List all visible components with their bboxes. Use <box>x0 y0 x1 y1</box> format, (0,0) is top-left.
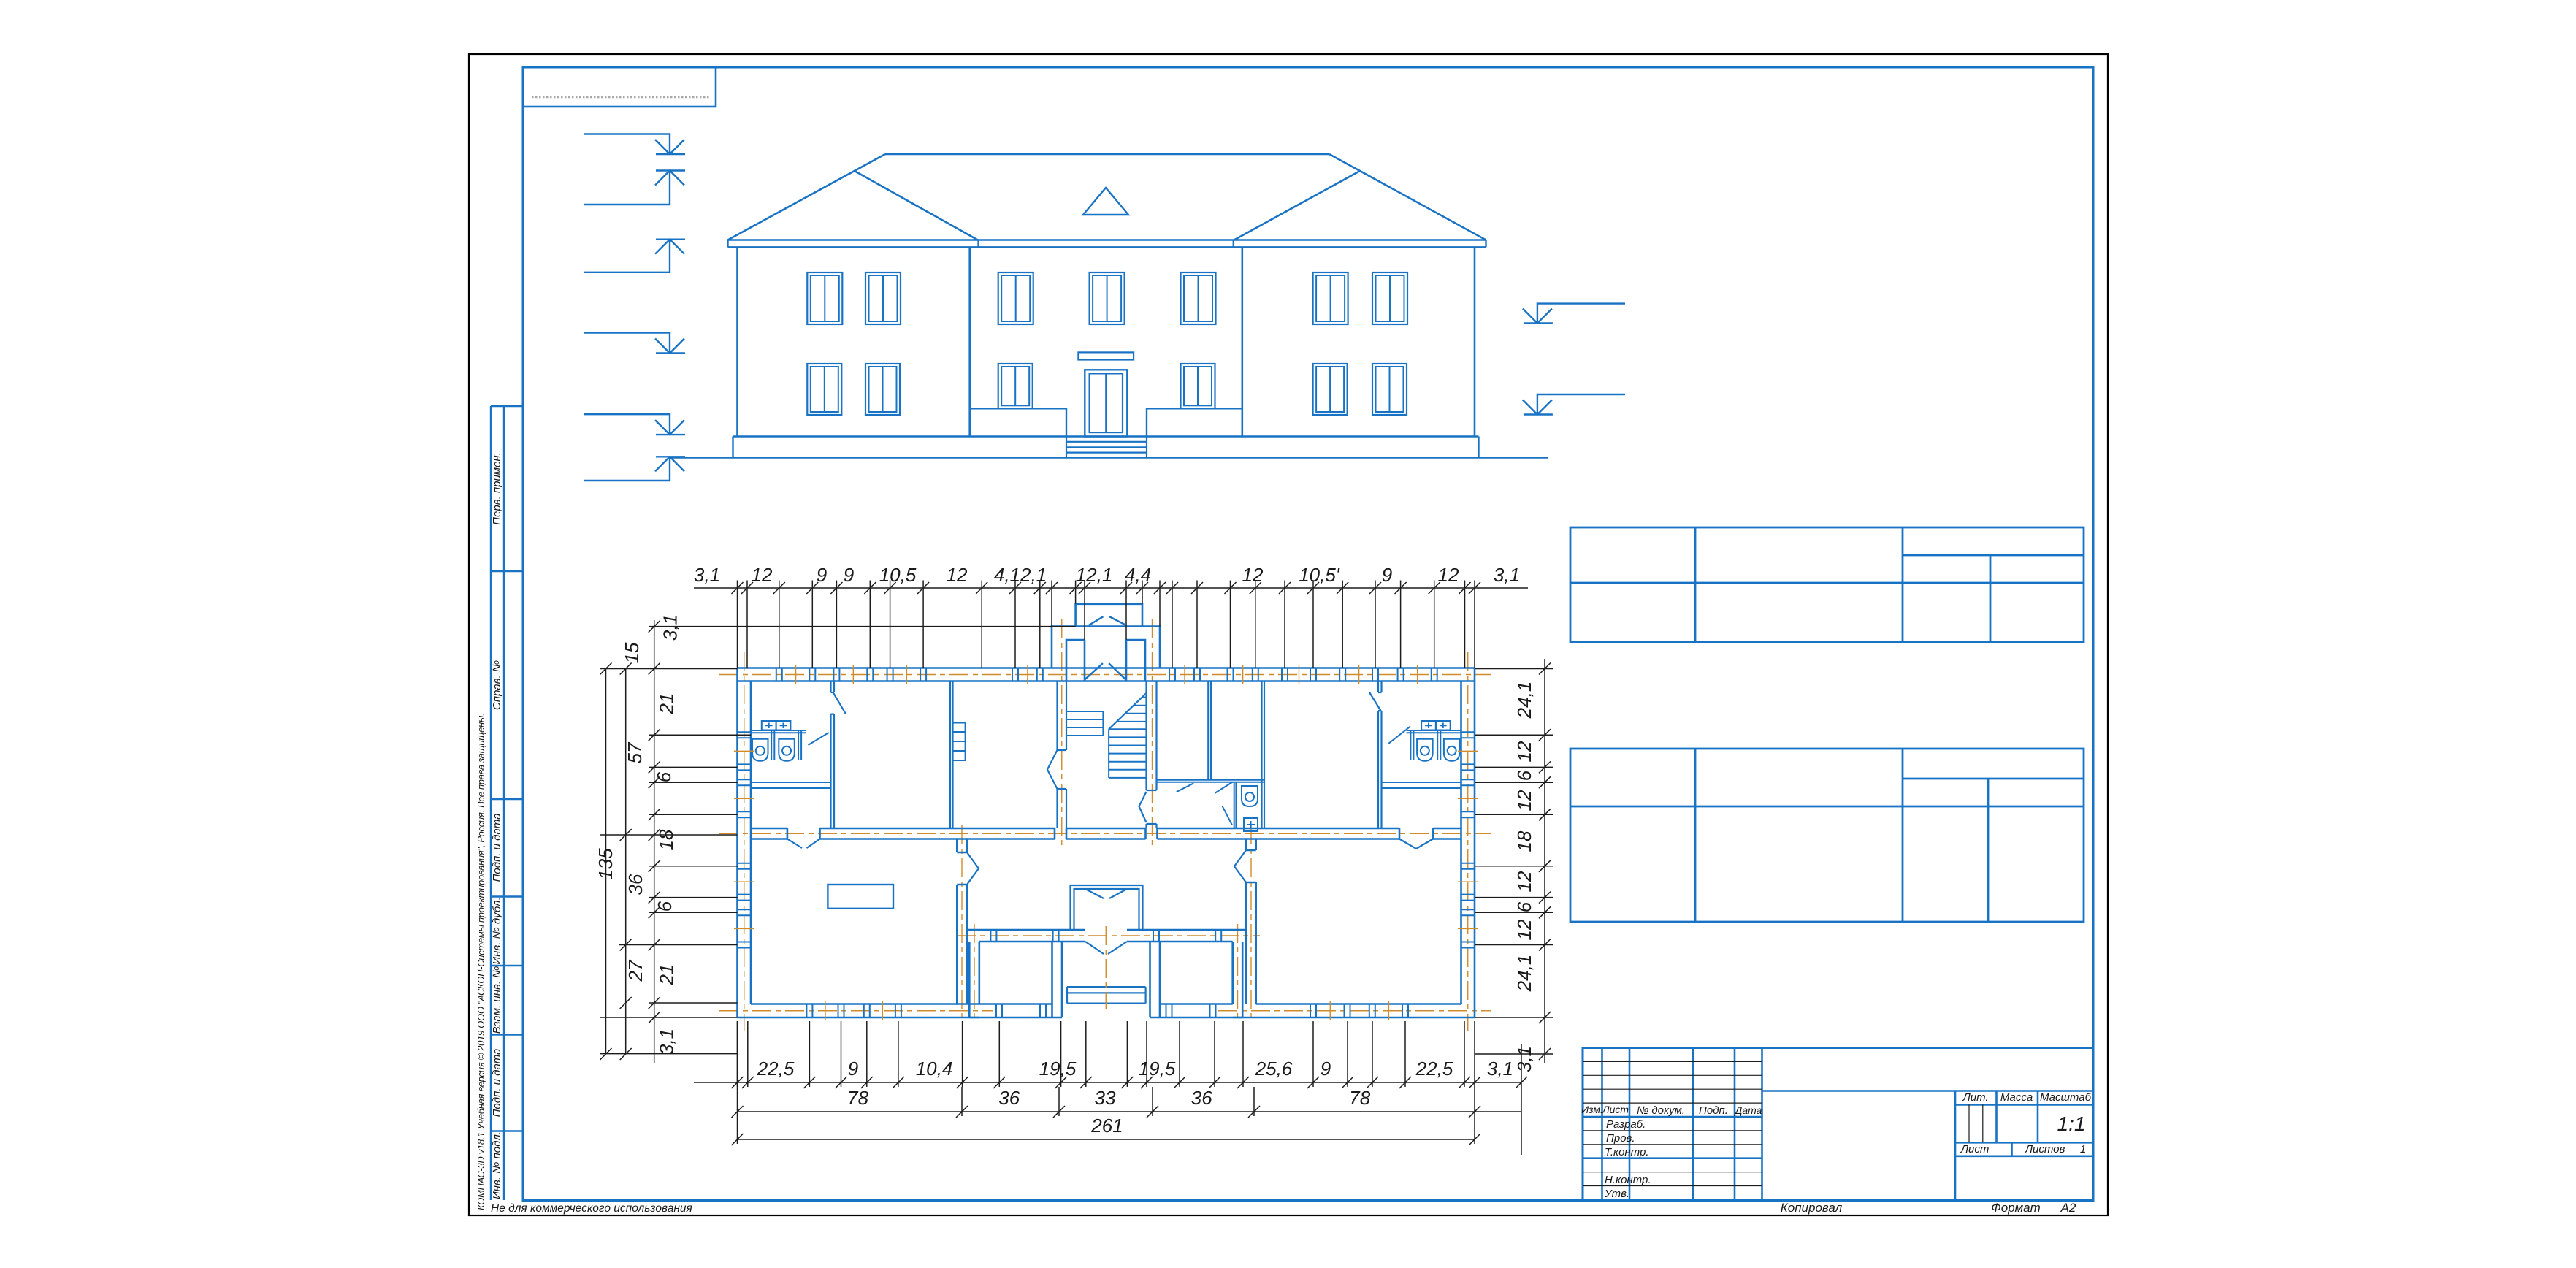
svg-text:25,6: 25,6 <box>1255 1058 1293 1080</box>
svg-text:78: 78 <box>1349 1087 1370 1109</box>
svg-text:36: 36 <box>624 874 646 895</box>
svg-text:12: 12 <box>752 564 773 586</box>
svg-text:12: 12 <box>1513 741 1535 762</box>
svg-text:1: 1 <box>2080 1143 2086 1156</box>
svg-text:10,5: 10,5 <box>879 564 917 586</box>
svg-text:12: 12 <box>1513 871 1535 892</box>
svg-text:10,5': 10,5' <box>1299 564 1340 586</box>
svg-text:135: 135 <box>595 848 616 880</box>
svg-text:Утв.: Утв. <box>1604 1188 1629 1200</box>
svg-text:Инв. № дубл.: Инв. № дубл. <box>491 897 503 964</box>
svg-text:36: 36 <box>998 1087 1020 1109</box>
svg-text:12: 12 <box>1513 790 1535 811</box>
svg-text:Копировал: Копировал <box>1781 1201 1843 1215</box>
svg-text:Разраб.: Разраб. <box>1606 1118 1646 1131</box>
svg-text:12: 12 <box>1242 564 1264 586</box>
svg-text:Не для коммерческого использов: Не для коммерческого использования <box>491 1202 692 1215</box>
svg-text:3,1: 3,1 <box>694 564 720 586</box>
svg-text:Формат: Формат <box>1991 1201 2041 1215</box>
svg-text:6: 6 <box>1513 770 1535 781</box>
svg-text:А2: А2 <box>2060 1201 2076 1215</box>
svg-text:33: 33 <box>1095 1087 1116 1109</box>
svg-text:Подп. и дата: Подп. и дата <box>491 814 503 882</box>
svg-text:9: 9 <box>844 564 854 586</box>
svg-text:6: 6 <box>654 901 676 912</box>
svg-text:3,1: 3,1 <box>656 1028 678 1055</box>
svg-text:Подп. и дата: Подп. и дата <box>491 1049 503 1118</box>
svg-text:Т.контр.: Т.контр. <box>1605 1146 1649 1158</box>
svg-text:261: 261 <box>1090 1115 1123 1137</box>
svg-text:57: 57 <box>624 741 646 763</box>
svg-text:6: 6 <box>653 771 675 782</box>
svg-text:Изм.: Изм. <box>1581 1104 1603 1115</box>
svg-text:4,12,1: 4,12,1 <box>994 564 1047 586</box>
svg-text:3,1: 3,1 <box>1494 564 1520 586</box>
svg-text:Масса: Масса <box>2000 1091 2033 1104</box>
svg-text:Масштаб: Масштаб <box>2040 1091 2092 1104</box>
svg-text:36: 36 <box>1191 1087 1212 1109</box>
svg-text:3,1: 3,1 <box>1513 1046 1535 1072</box>
svg-text:24,1: 24,1 <box>1513 681 1535 719</box>
svg-text:18: 18 <box>1513 830 1535 852</box>
svg-text:15: 15 <box>621 642 643 663</box>
svg-text:24,1: 24,1 <box>1513 955 1535 993</box>
svg-text:Взам. инв. №: Взам. инв. № <box>491 966 503 1034</box>
svg-text:27: 27 <box>624 959 646 982</box>
svg-text:18: 18 <box>655 829 677 850</box>
svg-text:№ докум.: № докум. <box>1637 1104 1685 1117</box>
svg-text:9: 9 <box>817 564 827 586</box>
svg-text:3,1: 3,1 <box>1487 1058 1513 1080</box>
svg-text:12: 12 <box>947 564 968 586</box>
svg-text:12: 12 <box>1438 564 1459 586</box>
svg-text:Инв. № подл.: Инв. № подл. <box>491 1131 503 1199</box>
svg-text:Дата: Дата <box>1734 1104 1762 1116</box>
svg-text:21: 21 <box>656 693 678 715</box>
svg-text:6: 6 <box>1513 901 1535 912</box>
svg-text:19,5: 19,5 <box>1139 1058 1176 1080</box>
svg-text:Справ. №: Справ. № <box>491 660 503 710</box>
svg-text:22,5: 22,5 <box>1415 1058 1453 1080</box>
svg-text:3,1: 3,1 <box>660 614 681 641</box>
svg-text:21: 21 <box>656 964 678 986</box>
svg-text:22,5: 22,5 <box>757 1058 795 1080</box>
svg-text:Н.контр.: Н.контр. <box>1605 1174 1651 1186</box>
svg-text:Лист: Лист <box>1602 1104 1629 1115</box>
svg-text:Лит.: Лит. <box>1962 1091 1988 1104</box>
svg-text:4,4: 4,4 <box>1125 564 1151 586</box>
svg-text:9: 9 <box>1321 1058 1331 1080</box>
svg-text:Листов: Листов <box>2025 1143 2065 1156</box>
svg-text:10,4: 10,4 <box>916 1058 953 1080</box>
svg-text:12,1: 12,1 <box>1076 564 1113 586</box>
svg-text:9: 9 <box>1382 564 1392 586</box>
svg-text:12: 12 <box>1513 919 1535 940</box>
svg-text:Подп.: Подп. <box>1699 1104 1728 1117</box>
svg-text:78: 78 <box>847 1087 868 1109</box>
svg-text:19,5: 19,5 <box>1039 1058 1077 1080</box>
svg-text:1:1: 1:1 <box>2057 1112 2086 1135</box>
svg-text:Перв. примен.: Перв. примен. <box>491 452 503 525</box>
svg-text:9: 9 <box>848 1058 858 1080</box>
svg-text:Лист: Лист <box>1960 1143 1990 1156</box>
svg-text:КОМПАС-3D v18.1 Учебная версия: КОМПАС-3D v18.1 Учебная версия © 2019 ОО… <box>475 714 486 1210</box>
svg-text:Пров.: Пров. <box>1606 1132 1635 1145</box>
